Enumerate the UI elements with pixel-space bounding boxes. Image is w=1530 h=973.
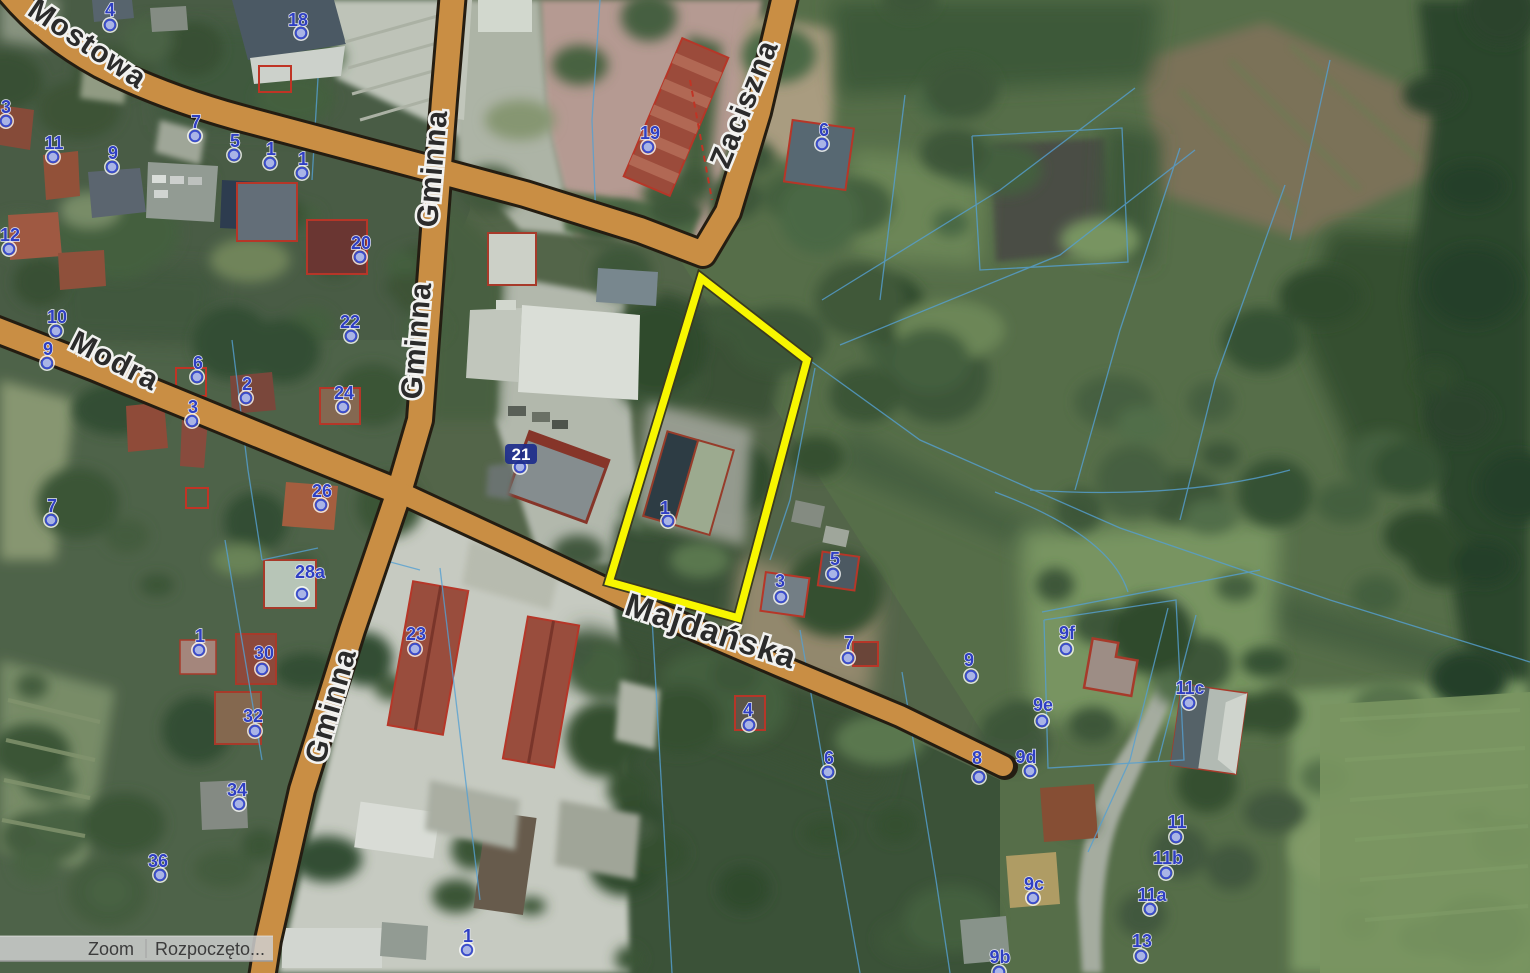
svg-text:30: 30	[254, 643, 274, 663]
svg-text:4: 4	[743, 700, 753, 720]
svg-text:10: 10	[47, 307, 67, 327]
svg-text:34: 34	[227, 780, 247, 800]
svg-text:18: 18	[288, 10, 308, 30]
svg-text:1: 1	[266, 139, 276, 159]
svg-text:7: 7	[844, 633, 854, 653]
svg-text:8: 8	[972, 748, 982, 768]
svg-text:5: 5	[830, 549, 840, 569]
svg-text:2: 2	[242, 374, 252, 394]
svg-text:32: 32	[243, 706, 263, 726]
svg-text:5: 5	[230, 131, 240, 151]
svg-text:11c: 11c	[1175, 678, 1204, 698]
svg-text:4: 4	[105, 0, 115, 20]
svg-text:11: 11	[44, 133, 63, 153]
svg-text:9d: 9d	[1015, 747, 1036, 767]
svg-text:23: 23	[406, 624, 426, 644]
svg-text:13: 13	[1132, 931, 1152, 951]
svg-text:1: 1	[660, 498, 670, 518]
svg-text:11a: 11a	[1137, 885, 1167, 905]
svg-text:19: 19	[640, 123, 660, 143]
svg-text:12: 12	[0, 225, 20, 245]
svg-text:11: 11	[1167, 812, 1186, 832]
svg-text:9f: 9f	[1059, 623, 1076, 643]
svg-text:9: 9	[43, 339, 53, 359]
svg-text:21: 21	[512, 445, 531, 464]
svg-text:3: 3	[1, 97, 11, 117]
svg-text:7: 7	[191, 112, 201, 132]
svg-text:7: 7	[47, 496, 57, 516]
svg-text:11b: 11b	[1153, 848, 1183, 868]
svg-text:3: 3	[775, 571, 785, 591]
svg-text:6: 6	[193, 353, 203, 373]
svg-text:36: 36	[148, 851, 168, 871]
svg-text:28a: 28a	[295, 562, 326, 582]
svg-text:20: 20	[351, 233, 371, 253]
svg-text:Rozpoczęto...: Rozpoczęto...	[155, 939, 265, 959]
svg-text:26: 26	[312, 481, 332, 501]
svg-text:6: 6	[824, 748, 834, 768]
svg-text:22: 22	[340, 312, 360, 332]
svg-text:9b: 9b	[989, 947, 1010, 967]
svg-text:9: 9	[964, 650, 974, 670]
svg-text:1: 1	[463, 926, 473, 946]
svg-text:24: 24	[334, 383, 354, 403]
svg-text:9e: 9e	[1033, 695, 1053, 715]
svg-text:9: 9	[108, 143, 118, 163]
svg-text:Zoom: Zoom	[88, 939, 134, 959]
svg-text:6: 6	[819, 120, 829, 140]
svg-text:1: 1	[298, 149, 308, 169]
svg-text:9c: 9c	[1024, 874, 1044, 894]
svg-text:1: 1	[195, 626, 205, 646]
svg-text:3: 3	[188, 397, 198, 417]
